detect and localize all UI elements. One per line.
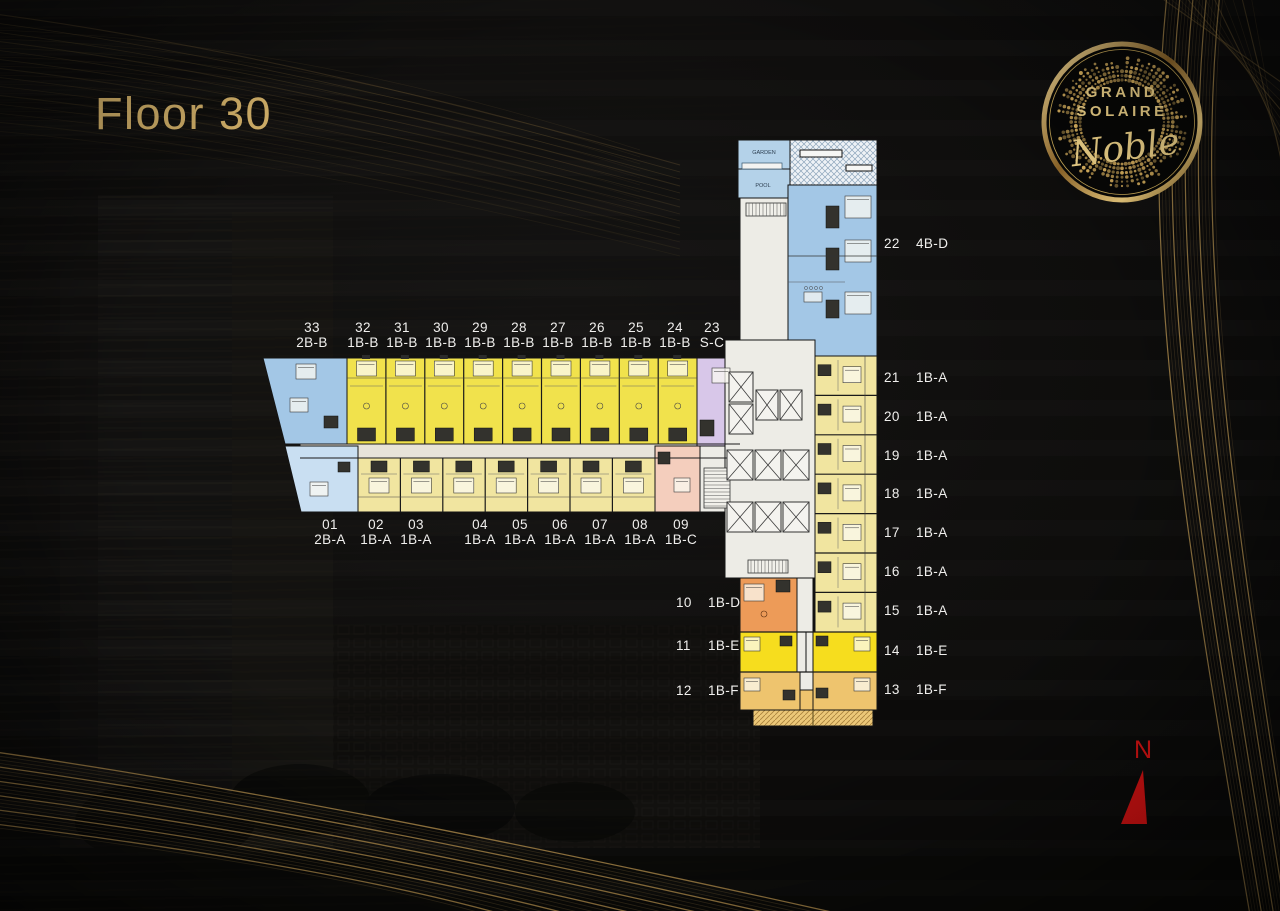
unit-type: 2B-A (314, 532, 346, 547)
unit-type: 1B-A (916, 525, 948, 540)
unit-label: 151B-A (884, 602, 948, 618)
brand-logo: GRAND SOLAIRE Noble (1022, 22, 1222, 222)
north-compass: N (1112, 736, 1172, 836)
unit-label: 121B-F (676, 682, 739, 698)
unit-number: 19 (884, 448, 906, 463)
unit-type: 1B-E (708, 638, 740, 653)
unit-label: 171B-A (884, 524, 948, 540)
unit-label: 201B-A (884, 408, 948, 424)
unit-label: 131B-F (884, 681, 947, 697)
logo-text-solaire: SOLAIRE (1076, 103, 1167, 120)
unit-number: 13 (884, 682, 906, 697)
unit-type: S-C (700, 335, 724, 350)
unit-type: 1B-A (360, 532, 392, 547)
unit-type: 1B-A (916, 448, 948, 463)
north-arrow-icon (1112, 736, 1172, 836)
unit-number: 11 (676, 638, 698, 653)
roof-deck-hatch (790, 140, 877, 185)
unit-number: 12 (676, 683, 698, 698)
unit-type: 1B-D (708, 595, 740, 610)
unit-number: 07 (592, 517, 608, 532)
unit-number: 09 (673, 517, 689, 532)
unit-01 (285, 446, 358, 512)
unit-type: 1B-A (400, 532, 432, 547)
page-title: Floor 30 (95, 88, 272, 140)
unit-label: 161B-A (884, 563, 948, 579)
unit-label: 091B-C (654, 517, 708, 547)
unit-number: 24 (667, 320, 683, 335)
unit-type: 1B-A (916, 564, 948, 579)
unit-number: 01 (322, 517, 338, 532)
unit-number: 22 (884, 236, 906, 251)
unit-number: 03 (408, 517, 424, 532)
unit-number: 20 (884, 409, 906, 424)
unit-number: 23 (704, 320, 720, 335)
unit-number: 30 (433, 320, 449, 335)
unit-label: 141B-E (884, 642, 948, 658)
unit-type: 1B-A (916, 603, 948, 618)
logo-text-grand: GRAND (1086, 84, 1159, 101)
unit-number: 17 (884, 525, 906, 540)
unit-number: 02 (368, 517, 384, 532)
unit-type: 1B-A (464, 532, 496, 547)
unit-number: 31 (394, 320, 410, 335)
unit-number: 29 (472, 320, 488, 335)
unit-type: 1B-A (624, 532, 656, 547)
unit-type: 1B-A (544, 532, 576, 547)
unit-number: 25 (628, 320, 644, 335)
unit-type: 1B-A (504, 532, 536, 547)
unit-label: 191B-A (884, 447, 948, 463)
unit-type: 4B-D (916, 236, 948, 251)
unit-number: 14 (884, 643, 906, 658)
unit-number: 04 (472, 517, 488, 532)
unit-type: 1B-E (916, 643, 948, 658)
unit-type: 1B-A (916, 486, 948, 501)
unit-type: 2B-B (296, 335, 328, 350)
unit-number: 16 (884, 564, 906, 579)
unit-number: 10 (676, 595, 698, 610)
plan-wall-lines (738, 163, 790, 169)
unit-type: 1B-A (916, 409, 948, 424)
unit-number: 32 (355, 320, 371, 335)
unit-label: 111B-E (676, 637, 740, 653)
unit-type: 1B-A (584, 532, 616, 547)
unit-number: 33 (304, 320, 320, 335)
unit-type: 1B-F (916, 682, 947, 697)
unit-number: 21 (884, 370, 906, 385)
unit-number: 06 (552, 517, 568, 532)
unit-number: 27 (550, 320, 566, 335)
brochure-page: GARDEN POOL 332B-B321B-B311B-B301B-B291B… (0, 0, 1280, 911)
unit-label: 211B-A (884, 369, 948, 385)
unit-number: 15 (884, 603, 906, 618)
unit-type: 1B-F (708, 683, 739, 698)
garden-label: GARDEN (752, 150, 776, 156)
unit-number: 05 (512, 517, 528, 532)
pool-label: POOL (755, 183, 770, 189)
unit-label: 332B-B (285, 320, 339, 350)
unit-number: 28 (511, 320, 527, 335)
unit-number: 08 (632, 517, 648, 532)
unit-number: 18 (884, 486, 906, 501)
unit-label: 23S-C (685, 320, 739, 350)
unit-type: 1B-A (916, 370, 948, 385)
unit-type: 1B-C (665, 532, 697, 547)
unit-label: 224B-D (884, 235, 948, 251)
unit-number: 26 (589, 320, 605, 335)
unit-label: 181B-A (884, 485, 948, 501)
unit-label: 101B-D (676, 594, 740, 610)
unit-label: 031B-A (389, 517, 443, 547)
